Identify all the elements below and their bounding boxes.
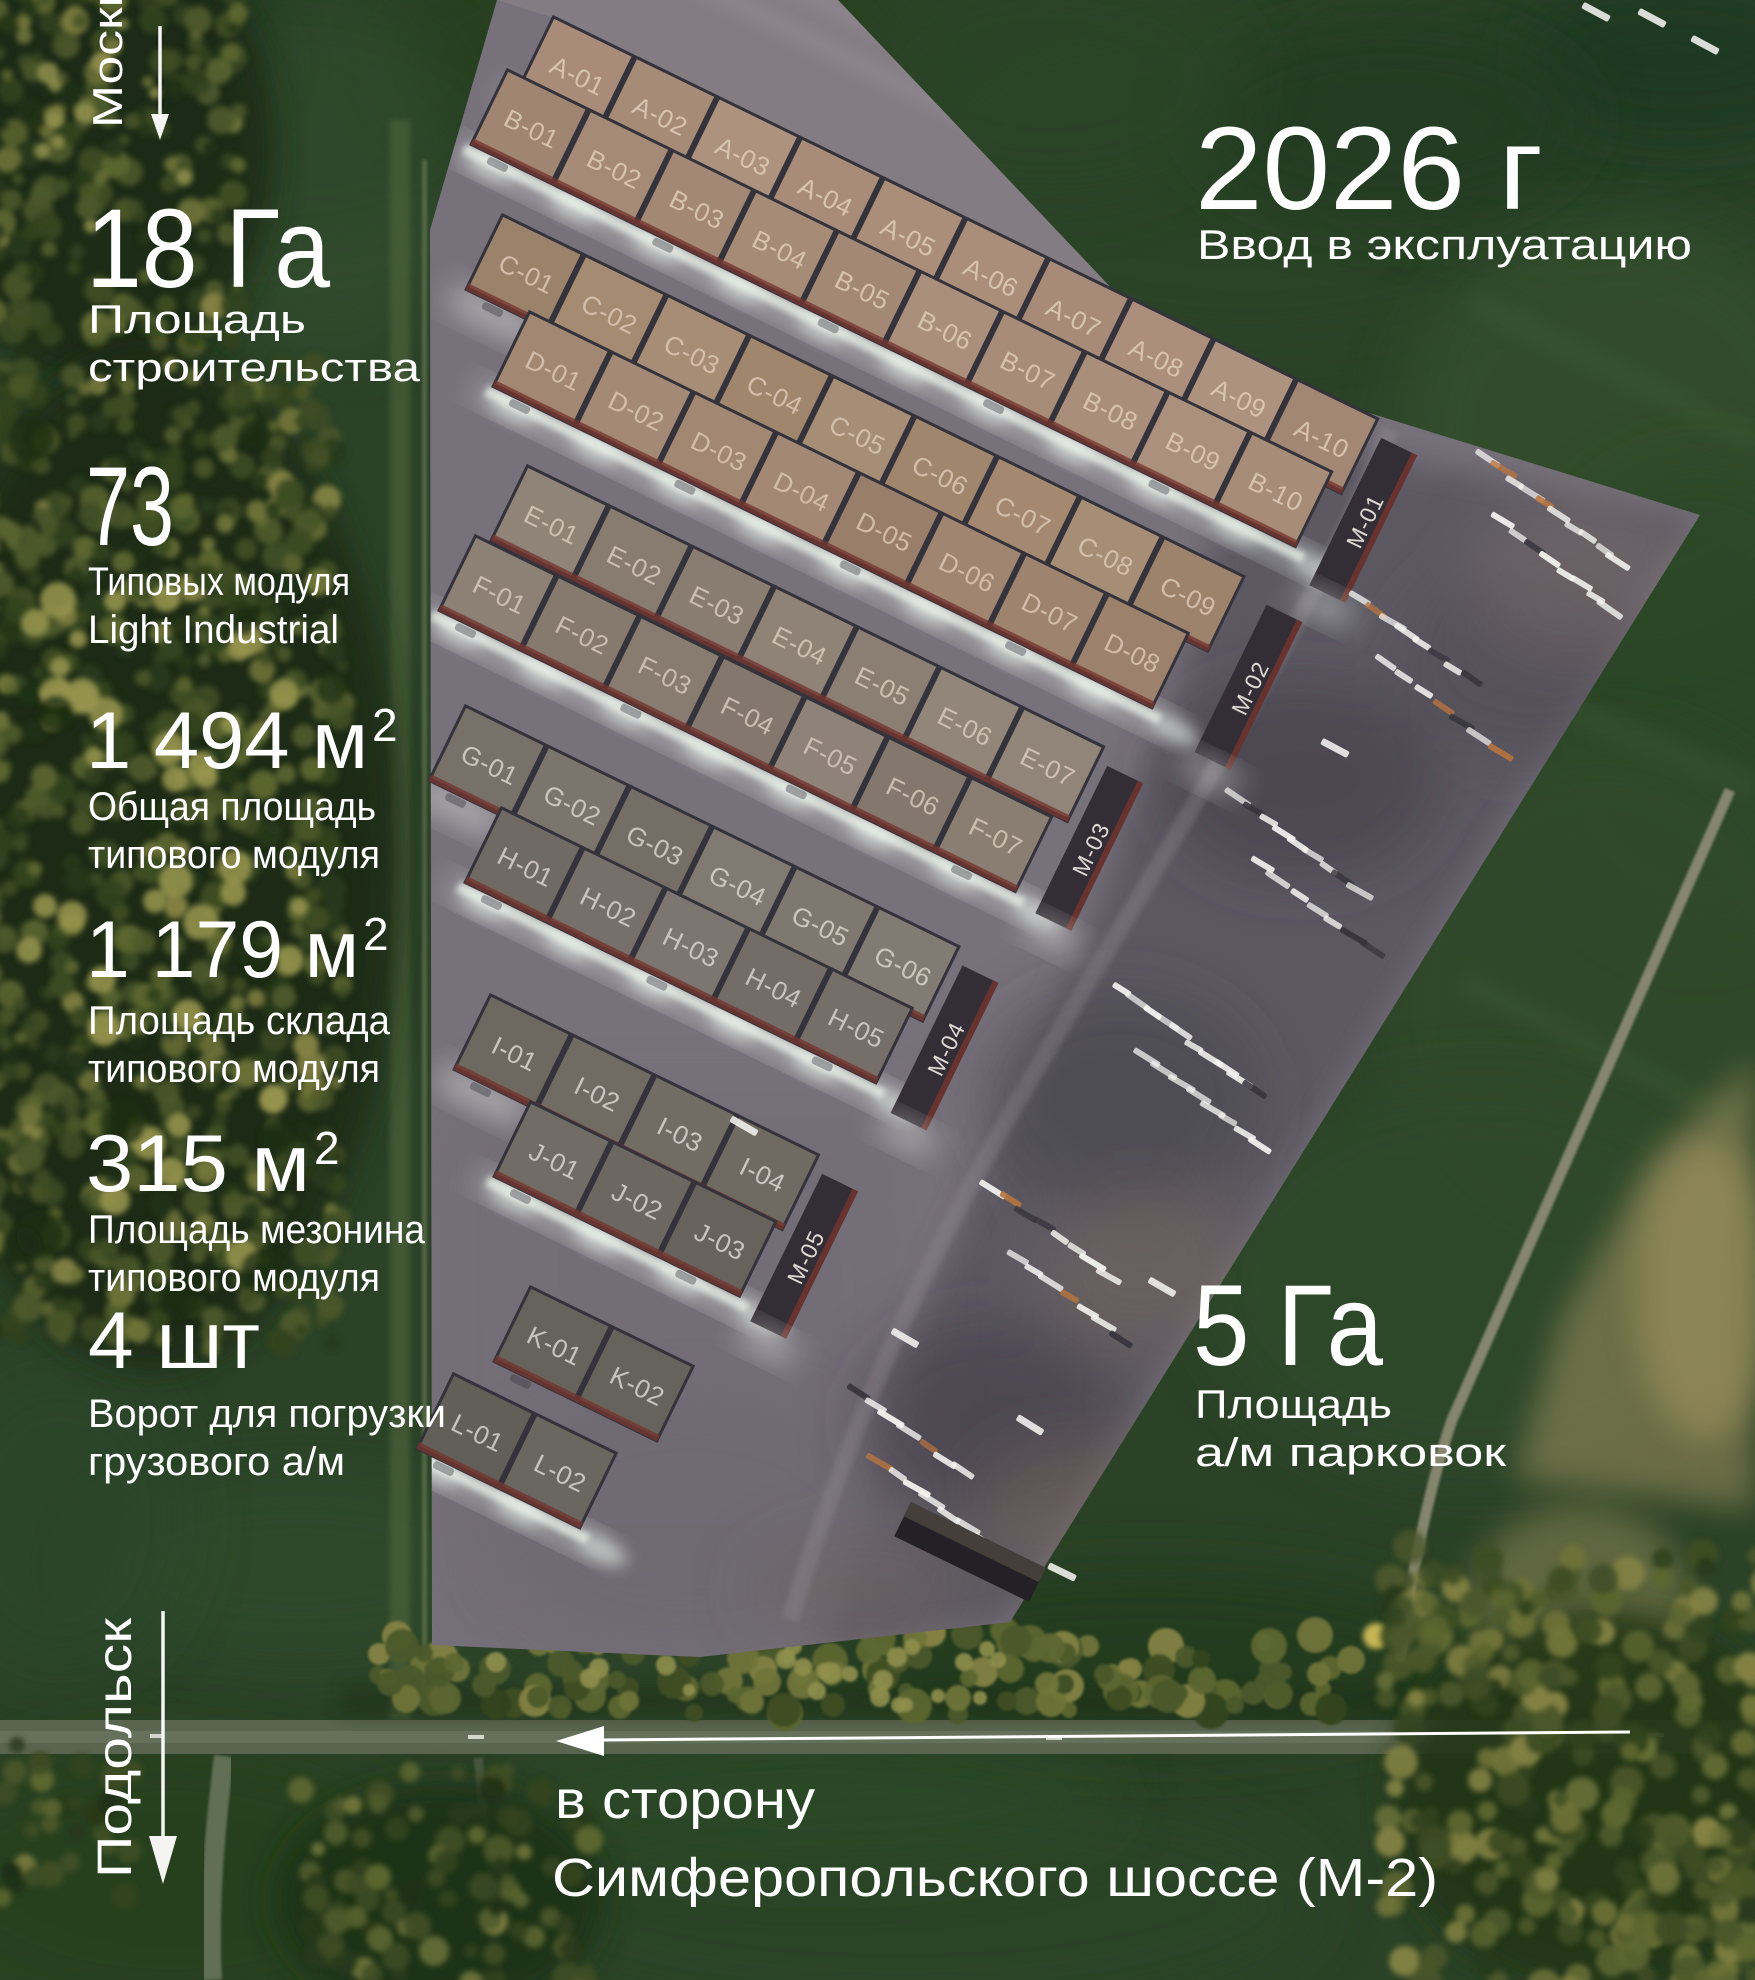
svg-text:а/м парковок: а/м парковок xyxy=(1195,1431,1507,1475)
svg-text:4 шт: 4 шт xyxy=(88,1296,260,1386)
svg-text:строительства: строительства xyxy=(88,346,421,390)
svg-text:5 Га: 5 Га xyxy=(1193,1262,1383,1390)
svg-text:1 494 м: 1 494 м xyxy=(86,696,368,786)
svg-text:Симферопольского шоссе (М-2): Симферопольского шоссе (М-2) xyxy=(552,1848,1438,1908)
svg-text:типового модуля: типового модуля xyxy=(88,1256,380,1300)
svg-text:2: 2 xyxy=(372,699,398,751)
svg-text:грузового а/м: грузового а/м xyxy=(88,1440,345,1484)
svg-text:типового модуля: типового модуля xyxy=(88,1047,380,1091)
svg-text:Площадь: Площадь xyxy=(88,298,306,342)
svg-text:Общая площадь: Общая площадь xyxy=(88,785,376,829)
svg-text:73: 73 xyxy=(86,444,174,569)
svg-text:Типовых модуля: Типовых модуля xyxy=(88,560,350,604)
svg-text:Москва: Москва xyxy=(84,0,131,128)
svg-text:2: 2 xyxy=(314,1122,340,1174)
svg-text:Площадь: Площадь xyxy=(1195,1383,1392,1427)
svg-text:в сторону: в сторону xyxy=(555,1770,815,1830)
svg-text:2: 2 xyxy=(363,908,389,960)
svg-text:Площадь мезонина: Площадь мезонина xyxy=(88,1208,426,1252)
svg-text:Light Industrial: Light Industrial xyxy=(88,608,339,652)
svg-text:Ввод в эксплуатацию: Ввод в эксплуатацию xyxy=(1197,221,1692,268)
svg-text:типового модуля: типового модуля xyxy=(88,833,380,877)
svg-text:1 179 м: 1 179 м xyxy=(86,905,359,995)
svg-text:Ворот для погрузки: Ворот для погрузки xyxy=(88,1392,446,1436)
svg-text:18 Га: 18 Га xyxy=(86,186,331,311)
svg-text:315 м: 315 м xyxy=(86,1119,310,1209)
svg-text:Подольск: Подольск xyxy=(89,1617,142,1878)
svg-text:Площадь склада: Площадь склада xyxy=(88,999,391,1043)
svg-text:2026 г: 2026 г xyxy=(1195,103,1543,235)
